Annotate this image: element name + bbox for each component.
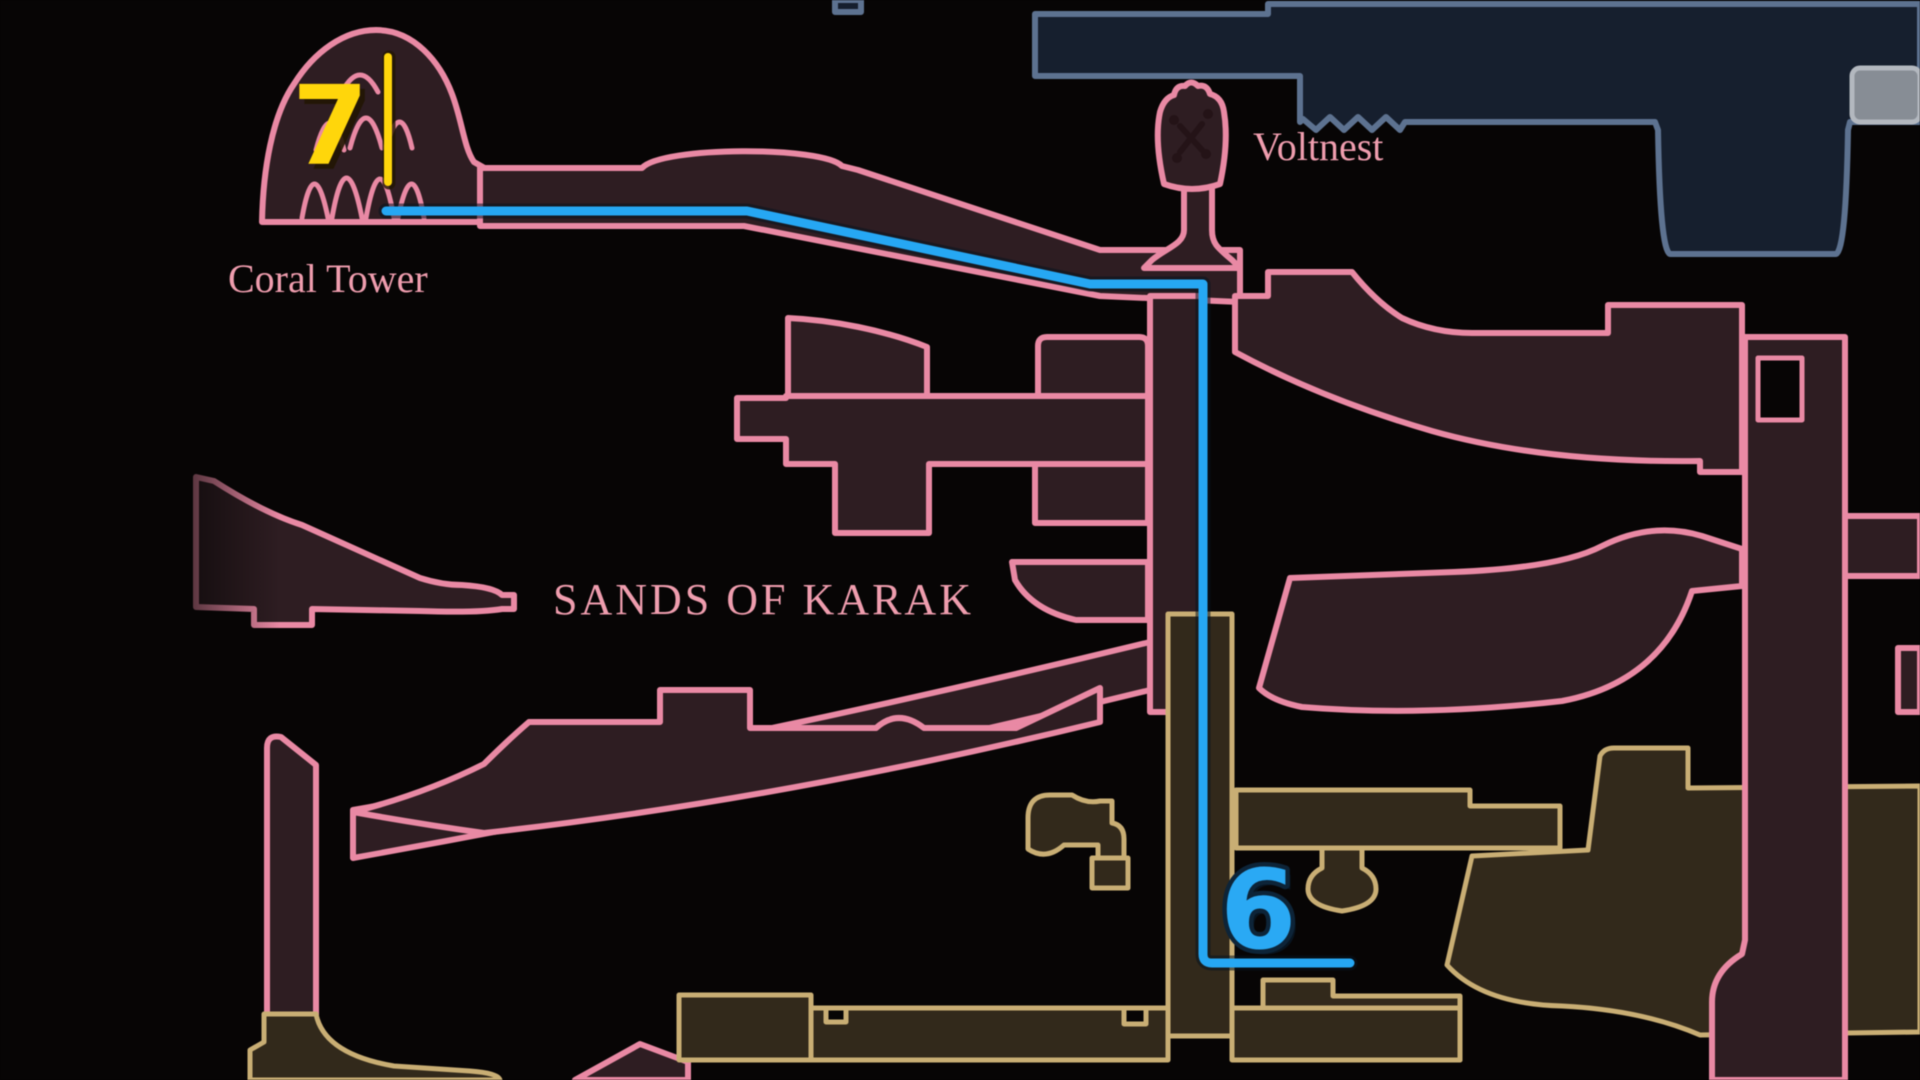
bottom-corridor-left-block <box>679 995 811 1060</box>
right-exit-corridor <box>1845 516 1920 576</box>
right-edge-fragment <box>1898 648 1920 712</box>
bottom-corridor-right <box>1232 1008 1460 1060</box>
corridor-notch <box>826 1008 846 1022</box>
upper-zone-nub <box>835 0 861 12</box>
bottom-corridor-shape <box>811 1008 1168 1060</box>
world-map: 7 7 6 6 Coral Tower Voltnest SANDS OF KA… <box>0 0 1920 1080</box>
game-map-viewport[interactable]: 7 7 6 6 Coral Tower Voltnest SANDS OF KA… <box>0 0 1920 1080</box>
central-lower-right-room <box>1035 464 1148 523</box>
tan-horn-nub <box>1092 858 1128 888</box>
unexplored-fade <box>140 430 280 680</box>
central-upper-right-room <box>1038 337 1148 396</box>
marker-7-number: 7 <box>292 62 369 190</box>
corridor-notch <box>1124 1008 1146 1024</box>
right-shaft-notch <box>1758 358 1802 420</box>
marker-6-number: 6 <box>1220 846 1297 974</box>
marker-6: 6 6 <box>1220 846 1302 979</box>
label-voltnest: Voltnest <box>1253 124 1383 169</box>
gray-fragment <box>1852 68 1920 122</box>
label-coral-tower: Coral Tower <box>228 256 428 301</box>
southwest-corridor-shape <box>267 736 316 1016</box>
label-sands-of-karak: SANDS OF KARAK <box>553 575 974 624</box>
